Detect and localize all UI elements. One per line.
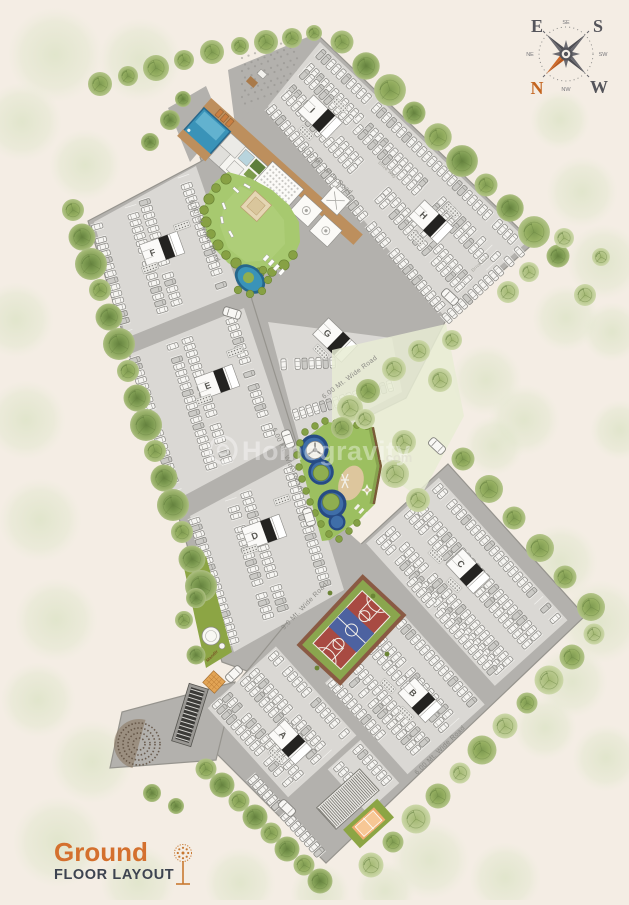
svg-text:SE: SE	[562, 20, 570, 26]
svg-text:E: E	[531, 16, 543, 36]
svg-text:.com: .com	[382, 450, 412, 465]
svg-text:W: W	[590, 77, 608, 97]
svg-text:NW: NW	[561, 87, 571, 93]
svg-text:N: N	[531, 78, 544, 98]
svg-text:S: S	[593, 16, 603, 36]
svg-text:SW: SW	[599, 52, 609, 58]
svg-text:FLOOR LAYOUT: FLOOR LAYOUT	[54, 867, 174, 883]
svg-text:Ground: Ground	[54, 837, 148, 867]
svg-text:NE: NE	[526, 52, 534, 58]
